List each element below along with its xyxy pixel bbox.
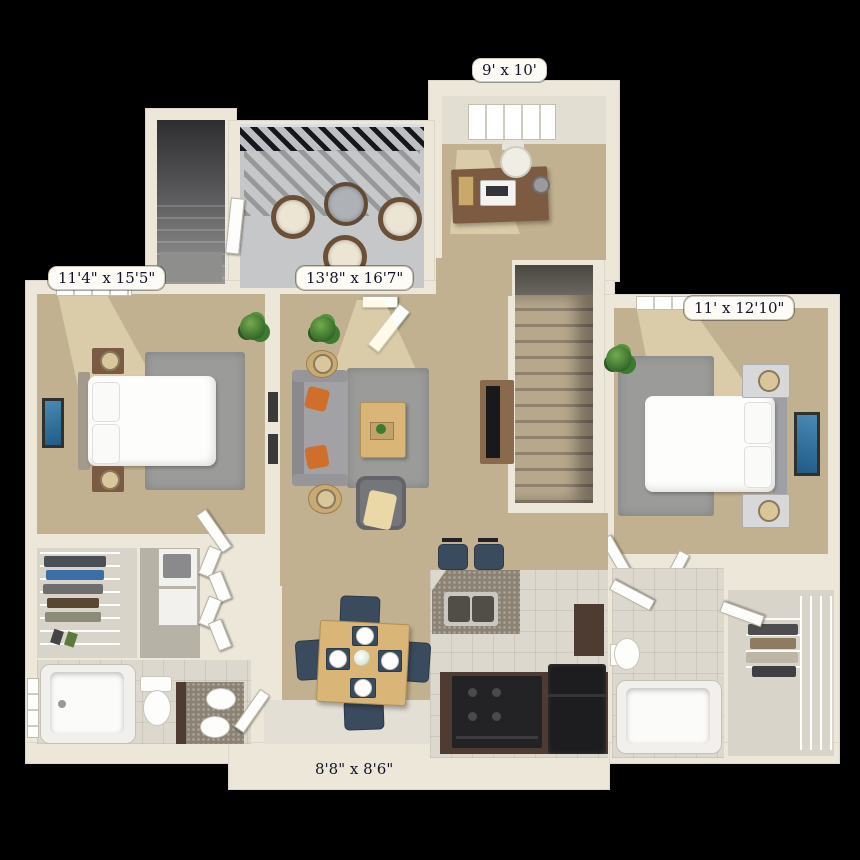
bathtub-right-basin	[626, 688, 710, 744]
closet-left-clothes-2	[46, 570, 104, 580]
living-wall-frame-1	[268, 392, 278, 422]
office-window	[468, 104, 556, 140]
vanity-left-sink-2	[200, 716, 230, 738]
entry-landing	[160, 252, 222, 282]
vanity-left-cabinet	[176, 682, 186, 744]
balcony-table	[324, 182, 368, 226]
bar-stool-back-2	[478, 538, 498, 542]
bedroom-left-lamp-top	[100, 351, 120, 371]
office-dimension-label: 9' x 10'	[472, 58, 547, 82]
washer-dryer-door	[163, 554, 191, 578]
bedroom-right-dimension-label: 11' x 12'10"	[684, 296, 794, 320]
bar-stool-2	[474, 544, 504, 570]
plate-left	[329, 650, 347, 668]
bedroom-right-pillow-2	[744, 446, 772, 488]
toilet-right-bowl	[614, 638, 640, 670]
bar-stool-back-1	[442, 538, 462, 542]
kitchen-pantry-cabinet	[574, 604, 604, 656]
bedroom-left-dimension-label: 11'4" x 15'5"	[48, 266, 165, 290]
closet-left-clothes-1	[44, 556, 106, 567]
office-laptop-keys	[486, 186, 508, 196]
bedroom-right-lamp-bottom	[758, 500, 780, 522]
wicker-chair-2	[378, 197, 422, 241]
office-hall-opening	[436, 258, 512, 296]
refrigerator-divider	[548, 694, 606, 697]
bathroom-left-window	[27, 678, 39, 738]
bedroom-left-pillow-1	[92, 382, 120, 422]
office-bookstack	[458, 176, 474, 206]
balcony-railing	[240, 124, 424, 151]
bedroom-right-pillow-1	[744, 402, 772, 444]
dining-flowers	[354, 650, 370, 666]
range-burners	[468, 688, 477, 697]
closet-left-clothes-3	[43, 584, 103, 594]
side-lamp-top	[313, 354, 333, 374]
office-chair	[500, 146, 532, 178]
bedroom-left-lamp-bottom	[100, 470, 120, 490]
toilet-left-bowl	[143, 690, 171, 726]
plate-right	[381, 652, 399, 670]
office-desk-lamp	[532, 176, 550, 194]
kitchen-sink-basin-2	[472, 596, 494, 622]
living-wall-frame-2	[268, 434, 278, 464]
dining-dimension-label: 8'8" x 8'6"	[306, 758, 402, 780]
closet-left-clothes-4	[47, 598, 99, 608]
living-room-plant	[310, 316, 336, 342]
hall-floor	[508, 513, 608, 570]
bedroom-right-lamp-top	[758, 370, 780, 392]
side-lamp-bottom	[316, 489, 336, 509]
refrigerator	[548, 664, 606, 754]
bedroom-left-plant	[240, 314, 266, 340]
closet-left-clothes-5	[45, 612, 101, 622]
vanity-left-sink-1	[206, 688, 236, 710]
stair-landing	[515, 265, 593, 295]
coffee-table-plant	[376, 424, 386, 434]
closet-right-clothes-4	[752, 666, 796, 677]
bedroom-right-wall-art	[794, 412, 820, 476]
plate-top	[356, 627, 374, 645]
floor-plan-image: 9' x 10' 11'4" x 15'5" 13'8" x 16'7" 11'…	[0, 0, 860, 860]
kitchen-sink-basin-1	[448, 596, 470, 622]
bathtub-left-drain	[58, 700, 66, 708]
tv-screen	[486, 386, 500, 458]
washer-dryer-split	[158, 586, 196, 589]
closet-right-clothes-2	[750, 638, 796, 649]
bedroom-right-plant	[606, 346, 632, 372]
bedroom-left-pillow-2	[92, 424, 120, 464]
staircase	[515, 295, 593, 503]
bedroom-right-headboard	[773, 392, 787, 496]
range-handle	[456, 736, 538, 739]
closet-right-wire-shelving	[800, 596, 832, 750]
accent-pillow-2	[304, 444, 329, 469]
plate-bottom	[354, 679, 372, 697]
wicker-chair-1	[271, 195, 315, 239]
bedroom-left-wall-art	[42, 398, 64, 448]
closet-right-clothes-3	[746, 652, 798, 663]
living-room-dimension-label: 13'8" x 16'7"	[296, 266, 413, 290]
bar-stool-1	[438, 544, 468, 570]
